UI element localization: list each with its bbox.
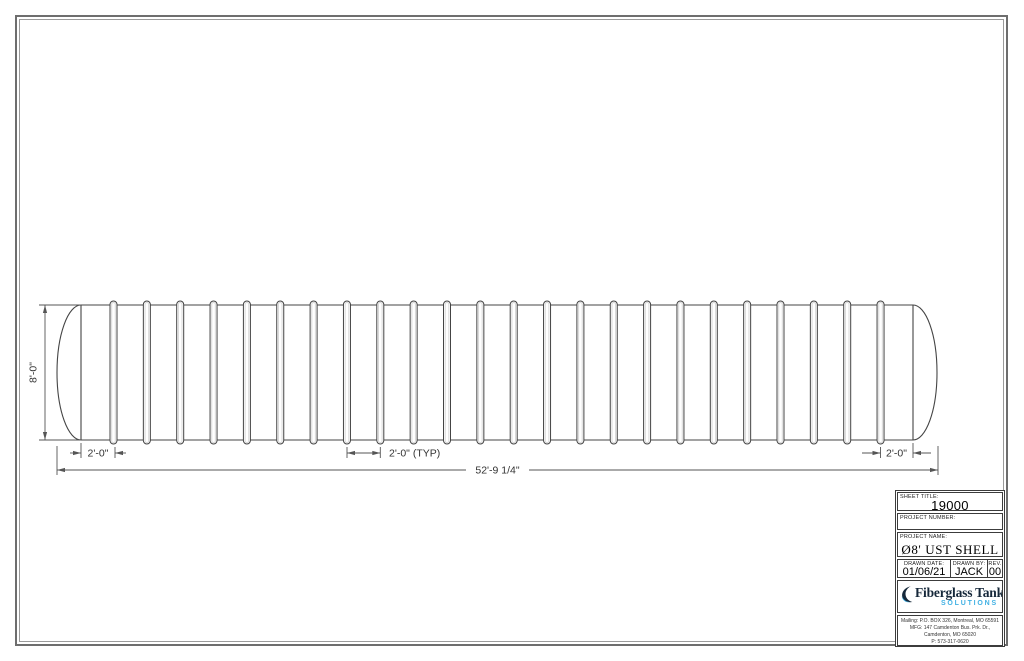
tank-rib <box>243 301 250 444</box>
tank-rib <box>544 301 551 444</box>
tank-rib <box>577 301 584 444</box>
tank-outline <box>57 305 937 440</box>
company-tagline: SOLUTIONS <box>941 600 998 607</box>
tank-right-dome <box>913 305 937 440</box>
project-name-box: PROJECT NAME: Ø8' UST SHELL <box>897 532 1003 557</box>
fiberglass-tank-swoosh-icon <box>901 586 916 603</box>
company-name: Fiberglass Tank <box>915 585 1003 601</box>
drawn-info-row: DRAWN DATE: 01/06/21 DRAWN BY: JACK REV.… <box>897 559 1003 578</box>
project-name-value: Ø8' UST SHELL <box>898 542 1002 557</box>
rev-cell: REV. 00 <box>987 560 1002 577</box>
tank-rib <box>110 301 117 444</box>
tank-rib <box>610 301 617 444</box>
drawn-by-cell: DRAWN BY: JACK <box>950 560 987 577</box>
project-number-label: PROJECT NUMBER: <box>898 514 1002 521</box>
tank-rib <box>644 301 651 444</box>
tank-rib <box>410 301 417 444</box>
dim-typ-spacing-label: 2'-0" (TYP) <box>389 448 440 460</box>
tank-rib <box>877 301 884 444</box>
drawn-date-value: 01/06/21 <box>898 567 950 578</box>
address-line: P: 573-317-0620 <box>898 639 1002 646</box>
tank-rib <box>310 301 317 444</box>
tank-rib <box>277 301 284 444</box>
address-line: Mailing: P.O. BOX 326, Montreal, MO 6559… <box>898 618 1002 625</box>
sheet-title-value: 19000 GALLONS <box>898 500 1002 511</box>
address-line: MFG: 147 Camdenton Bus. Prk. Dr., <box>898 625 1002 632</box>
project-number-box: PROJECT NUMBER: <box>897 513 1003 530</box>
rev-value: 00 <box>988 567 1002 578</box>
tank-rib <box>810 301 817 444</box>
tank-rib <box>477 301 484 444</box>
company-address-box: Mailing: P.O. BOX 326, Montreal, MO 6559… <box>897 615 1003 646</box>
dimension-lines <box>39 305 938 475</box>
tank-ribs <box>110 301 884 444</box>
tank-rib <box>777 301 784 444</box>
title-block: SHEET TITLE: 19000 GALLONS PROJECT NUMBE… <box>895 490 1005 647</box>
tank-drawing: 8'-0" 2'-0" 2'-0" (TYP) 52'-9 1/4" 2'-0" <box>0 0 1024 661</box>
tank-rib <box>143 301 150 444</box>
tank-rib <box>177 301 184 444</box>
tank-rib <box>210 301 217 444</box>
company-logo-box: Fiberglass Tank SOLUTIONS <box>897 580 1003 613</box>
tank-rib <box>510 301 517 444</box>
address-line: Camdenton, MO 65020 <box>898 632 1002 639</box>
dim-left-end-label: 2'-0" <box>88 448 109 460</box>
tank-rib <box>710 301 717 444</box>
dim-right-end-label: 2'-0" <box>886 448 907 460</box>
drawn-by-value: JACK <box>951 567 987 578</box>
tank-rib <box>444 301 451 444</box>
tank-rib <box>677 301 684 444</box>
dim-overall-length-label: 52'-9 1/4" <box>475 465 520 477</box>
project-name-label: PROJECT NAME: <box>898 533 1002 540</box>
dim-height-label: 8'-0" <box>28 362 40 383</box>
tank-left-dome <box>57 305 81 440</box>
tank-rib <box>343 301 350 444</box>
tank-rib <box>377 301 384 444</box>
drawn-date-cell: DRAWN DATE: 01/06/21 <box>898 560 950 577</box>
tank-rib <box>844 301 851 444</box>
tank-rib <box>744 301 751 444</box>
drawing-sheet: { "drawing": { "rib_count": 24, "rib_fir… <box>0 0 1024 661</box>
sheet-title-box: SHEET TITLE: 19000 GALLONS <box>897 492 1003 511</box>
